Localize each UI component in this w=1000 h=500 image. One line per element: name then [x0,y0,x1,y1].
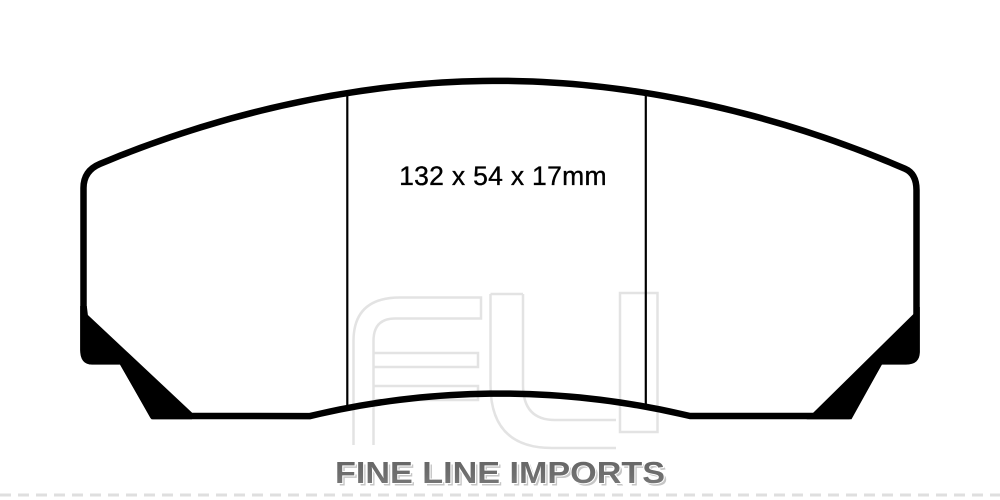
svg-text:FINE LINE IMPORTS: FINE LINE IMPORTS [335,455,665,490]
svg-text:132 x 54 x 17mm: 132 x 54 x 17mm [399,161,607,191]
